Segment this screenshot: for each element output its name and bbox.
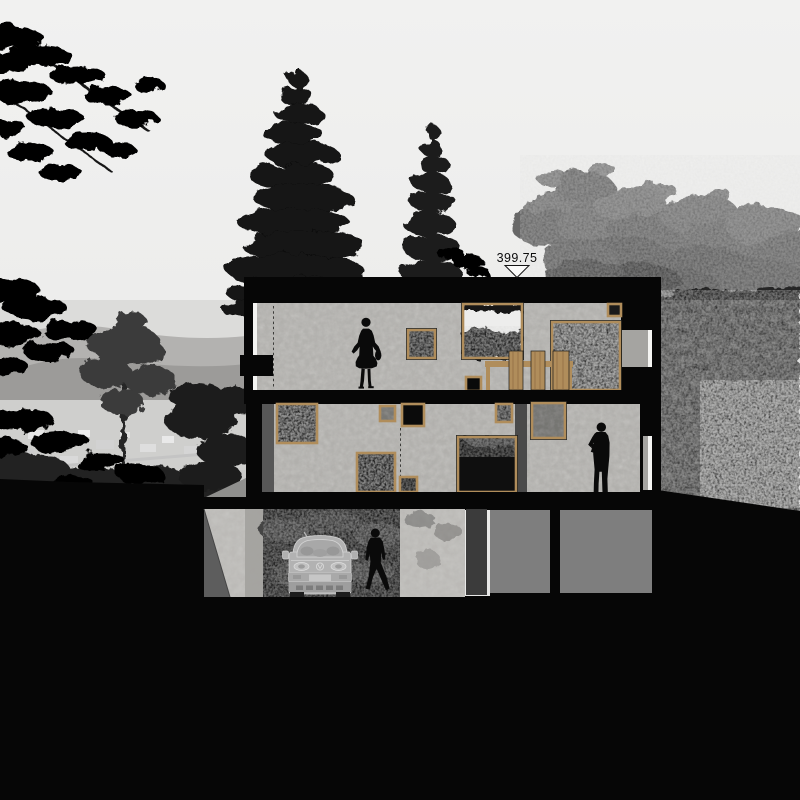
left-wall [246, 404, 262, 492]
window-w4 [357, 453, 395, 492]
dark-door-strip [466, 509, 487, 595]
window-w1 [277, 404, 317, 443]
gray-panel-2 [560, 510, 652, 593]
window-w6 [496, 404, 512, 422]
window-w2 [380, 406, 395, 421]
middle-floor [246, 401, 661, 496]
window-small-top-right [608, 304, 621, 316]
framed-picture [406, 328, 436, 359]
upper-floor [240, 302, 661, 391]
window-w3 [402, 404, 424, 426]
left-wall [244, 303, 253, 390]
left-gray-strip [262, 404, 274, 492]
section-drawing: 399.75 [0, 0, 800, 800]
retaining-pillar [204, 509, 246, 597]
architectural-section-scene: 399.75 [0, 0, 800, 800]
left-wall-ledge [240, 355, 273, 376]
opening-small-black [466, 377, 481, 391]
roof-slab [244, 277, 661, 303]
floor-slab-mid [244, 390, 661, 404]
building-section [204, 277, 661, 598]
window-w5 [400, 477, 417, 492]
right-niche [643, 436, 648, 490]
window-w8 [456, 435, 517, 493]
floor-slab-low [244, 492, 661, 510]
right-niche [622, 330, 648, 367]
tree-mass-right [652, 286, 800, 512]
garage-level [204, 509, 661, 598]
gray-panel-1 [490, 510, 550, 594]
window-w7 [530, 401, 566, 439]
elevation-value: 399.75 [497, 251, 538, 265]
